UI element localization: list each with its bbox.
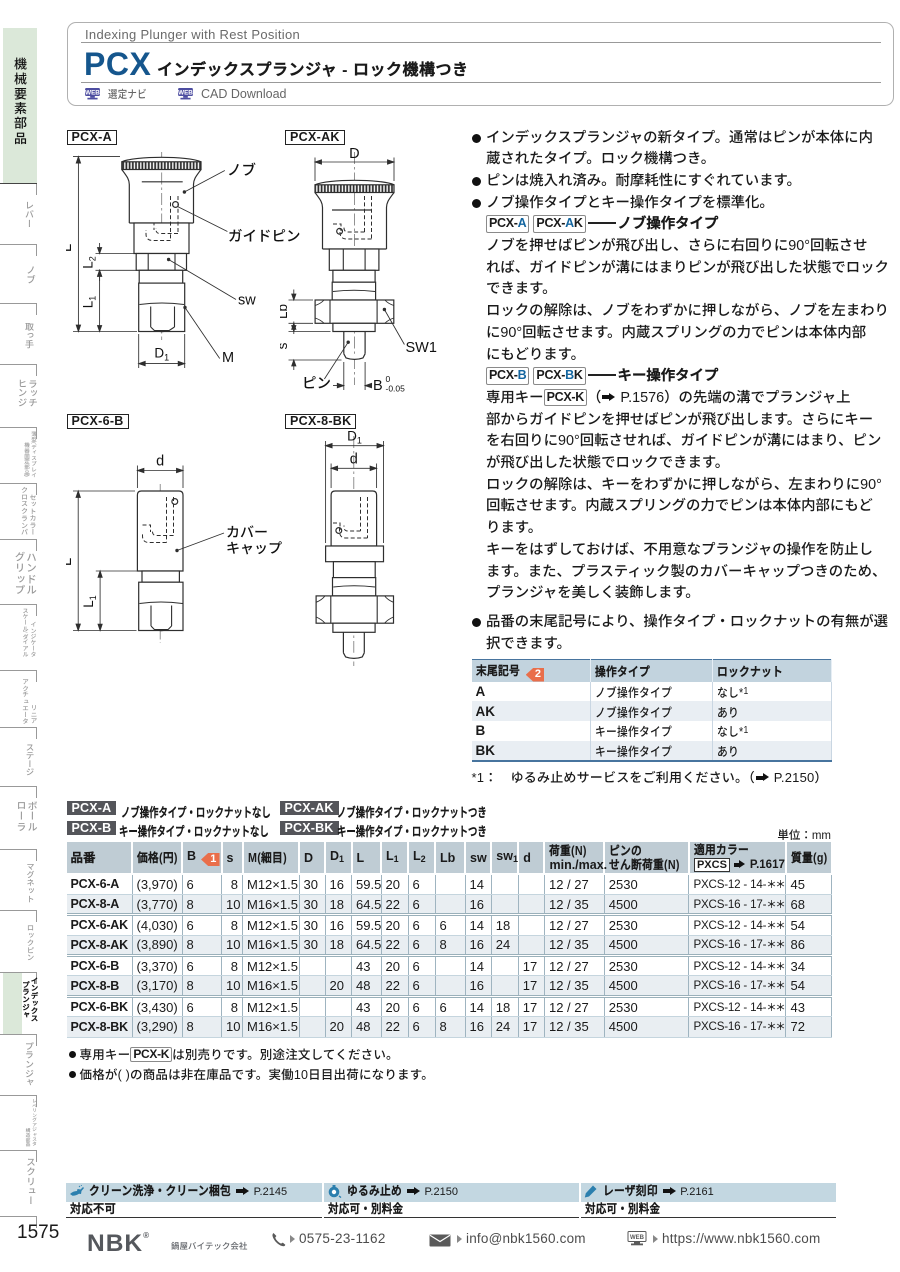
svg-text:キャップ: キャップ [226, 540, 282, 556]
svg-text:ノブ: ノブ [227, 162, 256, 179]
svg-text:D: D [349, 146, 359, 162]
svg-text:L: L [66, 244, 75, 252]
svg-text:0: 0 [386, 374, 391, 384]
svg-text:カバー: カバー [226, 524, 268, 540]
svg-text:SW1: SW1 [406, 340, 437, 356]
svg-text:ピン: ピン [302, 376, 331, 392]
svg-text:WEB: WEB [630, 1235, 645, 1241]
svg-text:Lb: Lb [280, 304, 290, 319]
svg-text:d: d [156, 454, 164, 470]
svg-text:L2: L2 [81, 256, 98, 269]
svg-text:B: B [373, 378, 383, 394]
svg-text:M: M [222, 350, 234, 366]
svg-text:L1: L1 [81, 595, 98, 608]
svg-text:d: d [350, 452, 358, 468]
svg-text:D1: D1 [154, 346, 169, 363]
svg-text:WEB: WEB [85, 89, 100, 96]
svg-text:D1: D1 [347, 430, 362, 446]
svg-text:L1: L1 [81, 296, 98, 309]
svg-text:WEB: WEB [178, 89, 193, 96]
svg-text:s: s [280, 342, 290, 349]
svg-text:sw: sw [238, 293, 256, 309]
svg-text:L: L [66, 558, 75, 566]
svg-text:-0.05: -0.05 [386, 384, 406, 394]
